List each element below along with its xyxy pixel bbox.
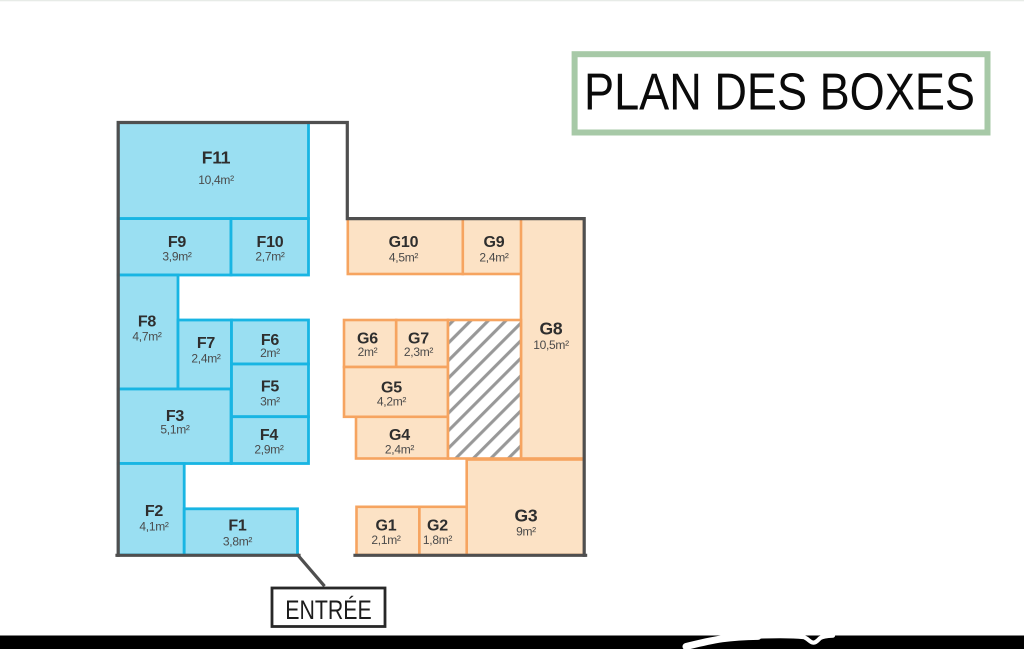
svg-text:5,1m²: 5,1m² bbox=[160, 423, 189, 437]
svg-text:2,4m²: 2,4m² bbox=[385, 443, 414, 457]
svg-text:4,5m²: 4,5m² bbox=[389, 251, 418, 265]
svg-text:2m²: 2m² bbox=[358, 345, 378, 359]
svg-text:10,4m²: 10,4m² bbox=[198, 173, 234, 187]
svg-text:F11: F11 bbox=[202, 148, 231, 168]
svg-text:F9: F9 bbox=[168, 234, 187, 251]
svg-text:G1: G1 bbox=[376, 518, 397, 535]
svg-text:2,4m²: 2,4m² bbox=[191, 352, 220, 366]
svg-text:G2: G2 bbox=[427, 518, 448, 535]
svg-text:3m²: 3m² bbox=[260, 395, 280, 409]
svg-text:G8: G8 bbox=[540, 319, 563, 339]
svg-text:3,9m²: 3,9m² bbox=[162, 250, 191, 264]
svg-text:4,7m²: 4,7m² bbox=[132, 330, 161, 344]
svg-text:10,5m²: 10,5m² bbox=[533, 338, 569, 352]
svg-text:G4: G4 bbox=[389, 427, 410, 444]
svg-text:2,9m²: 2,9m² bbox=[254, 443, 283, 457]
svg-text:PLAN DES BOXES: PLAN DES BOXES bbox=[584, 64, 975, 122]
svg-text:G10: G10 bbox=[389, 234, 419, 251]
svg-text:F1: F1 bbox=[228, 518, 247, 535]
svg-text:ENTRÉE: ENTRÉE bbox=[285, 595, 372, 625]
svg-text:F8: F8 bbox=[138, 314, 157, 331]
svg-text:F7: F7 bbox=[197, 335, 216, 352]
svg-text:F4: F4 bbox=[260, 427, 279, 444]
svg-text:F5: F5 bbox=[261, 379, 280, 396]
svg-text:1,8m²: 1,8m² bbox=[423, 533, 452, 547]
svg-text:2,1m²: 2,1m² bbox=[371, 533, 400, 547]
svg-text:F10: F10 bbox=[257, 234, 284, 251]
svg-text:4,2m²: 4,2m² bbox=[377, 395, 406, 409]
svg-text:2,4m²: 2,4m² bbox=[479, 251, 508, 265]
svg-text:3,8m²: 3,8m² bbox=[223, 535, 252, 549]
svg-text:G9: G9 bbox=[484, 234, 505, 251]
svg-text:9m²: 9m² bbox=[516, 525, 536, 539]
svg-text:4,1m²: 4,1m² bbox=[139, 520, 168, 534]
svg-text:G3: G3 bbox=[515, 506, 538, 526]
svg-text:2,3m²: 2,3m² bbox=[404, 345, 433, 359]
svg-text:2m²: 2m² bbox=[260, 346, 280, 360]
svg-text:F2: F2 bbox=[145, 503, 164, 520]
svg-text:2,7m²: 2,7m² bbox=[255, 250, 284, 264]
